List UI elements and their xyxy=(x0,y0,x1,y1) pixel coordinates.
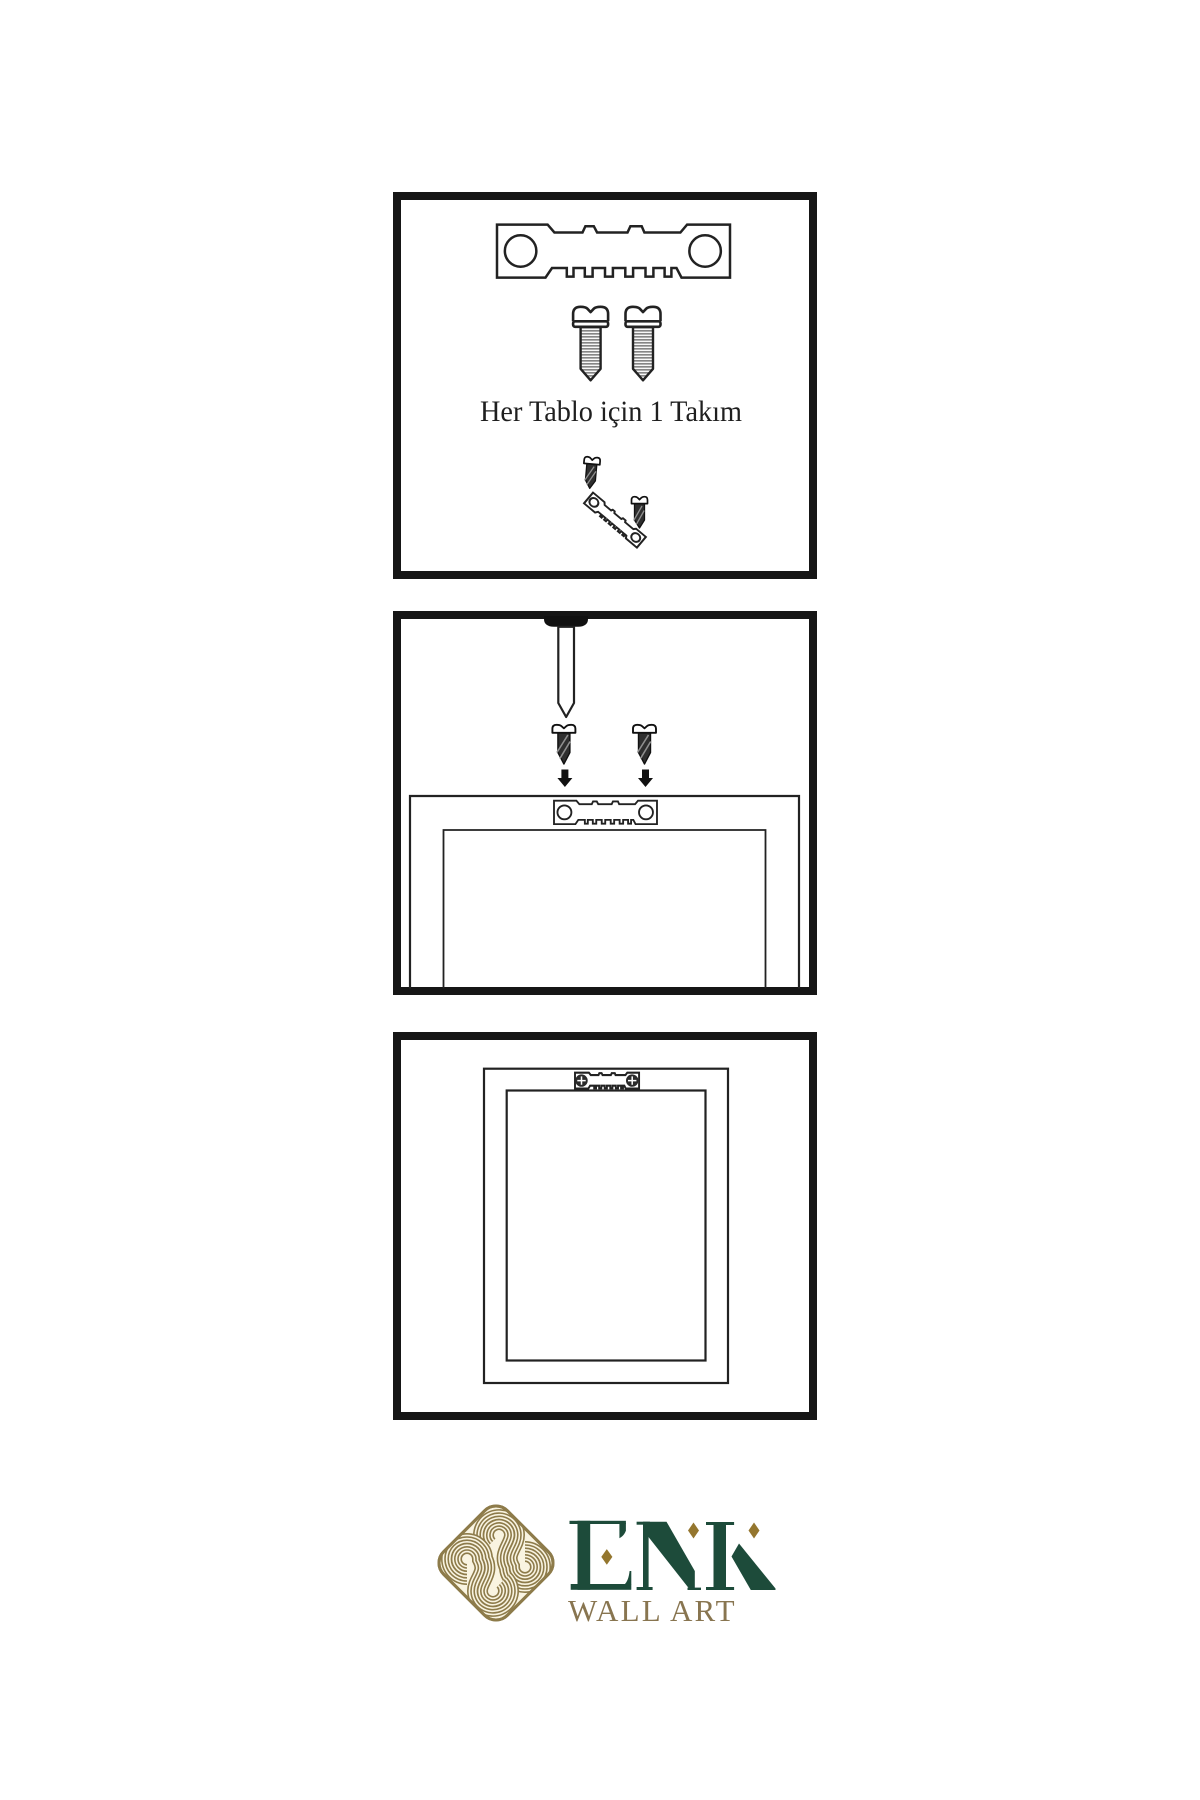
svg-text:Her Tablo için 1 Takım: Her Tablo için 1 Takım xyxy=(480,395,742,428)
svg-text:WALL ART: WALL ART xyxy=(568,1593,737,1628)
